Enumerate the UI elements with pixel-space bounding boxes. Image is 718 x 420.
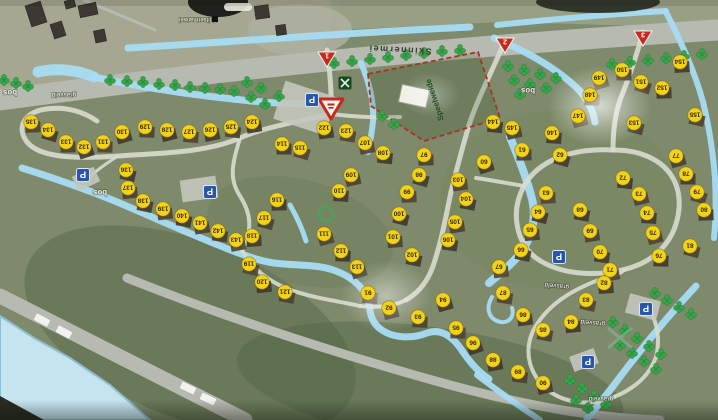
house-marker: 144 bbox=[486, 115, 500, 129]
parking-sign: P bbox=[77, 169, 90, 182]
house-marker: 61 bbox=[515, 143, 529, 157]
svg-text:P: P bbox=[642, 303, 649, 314]
map-label: Snitsermarwei bbox=[179, 16, 217, 22]
house-marker: 103 bbox=[451, 173, 465, 187]
svg-text:1: 1 bbox=[325, 52, 329, 61]
house-marker: 77 bbox=[669, 149, 683, 163]
svg-text:98: 98 bbox=[415, 171, 423, 178]
svg-text:70: 70 bbox=[596, 248, 604, 255]
svg-text:109: 109 bbox=[345, 171, 356, 178]
parking-sign: P bbox=[306, 94, 319, 107]
svg-text:121: 121 bbox=[279, 288, 290, 295]
house-marker: 113 bbox=[350, 260, 364, 274]
house-marker: 106 bbox=[441, 233, 455, 247]
svg-text:140: 140 bbox=[176, 212, 187, 219]
svg-text:122: 122 bbox=[318, 124, 329, 131]
house-marker: 109 bbox=[344, 168, 358, 182]
svg-text:73: 73 bbox=[635, 190, 643, 197]
svg-text:77: 77 bbox=[672, 152, 680, 159]
svg-text:91: 91 bbox=[364, 289, 372, 296]
svg-text:126: 126 bbox=[204, 126, 215, 133]
house-marker: 154 bbox=[673, 55, 687, 69]
house-marker: 75 bbox=[646, 226, 660, 240]
svg-text:64: 64 bbox=[534, 208, 542, 215]
house-marker: 111 bbox=[317, 227, 331, 241]
house-marker: 118 bbox=[245, 229, 259, 243]
svg-text:102: 102 bbox=[406, 251, 417, 258]
svg-text:106: 106 bbox=[442, 236, 453, 243]
house-marker: 120 bbox=[255, 275, 269, 289]
svg-text:68: 68 bbox=[576, 206, 584, 213]
svg-text:145: 145 bbox=[506, 124, 517, 131]
house-marker: 96 bbox=[466, 336, 480, 350]
house-marker: 134 bbox=[41, 123, 55, 137]
svg-text:113: 113 bbox=[351, 263, 362, 270]
svg-text:69: 69 bbox=[586, 227, 594, 234]
house-marker: 155 bbox=[688, 108, 702, 122]
house-marker: 95 bbox=[449, 321, 463, 335]
svg-text:114: 114 bbox=[276, 140, 287, 147]
house-marker: 115 bbox=[293, 141, 307, 155]
svg-text:74: 74 bbox=[643, 209, 651, 216]
house-marker: 105 bbox=[448, 215, 462, 229]
house-marker: 127 bbox=[182, 125, 196, 139]
house-marker: 80 bbox=[697, 203, 711, 217]
svg-text:100: 100 bbox=[393, 210, 404, 217]
svg-text:151: 151 bbox=[635, 78, 646, 85]
house-marker: 145 bbox=[505, 121, 519, 135]
house-marker: 143 bbox=[229, 233, 243, 247]
svg-text:137: 137 bbox=[122, 184, 133, 191]
svg-text:101: 101 bbox=[387, 233, 398, 240]
house-marker: 70 bbox=[593, 245, 607, 259]
legend-square bbox=[212, 16, 218, 22]
svg-text:119: 119 bbox=[243, 260, 254, 267]
svg-text:110: 110 bbox=[333, 187, 344, 194]
svg-text:P: P bbox=[555, 251, 562, 262]
svg-text:92: 92 bbox=[385, 304, 393, 311]
map-label: bos bbox=[2, 88, 17, 97]
svg-text:97: 97 bbox=[420, 151, 428, 158]
building bbox=[93, 29, 106, 43]
building bbox=[275, 24, 286, 35]
house-marker: 121 bbox=[278, 285, 292, 299]
map-label: grasveld bbox=[51, 91, 76, 98]
parking-sign: P bbox=[204, 186, 217, 199]
svg-text:148: 148 bbox=[584, 91, 595, 98]
svg-text:124: 124 bbox=[246, 118, 257, 125]
svg-text:76: 76 bbox=[655, 252, 663, 259]
house-marker: 90 bbox=[536, 376, 550, 390]
svg-text:138: 138 bbox=[137, 197, 148, 204]
house-marker: 152 bbox=[655, 81, 669, 95]
house-marker: 151 bbox=[634, 75, 648, 89]
house-marker: 112 bbox=[334, 244, 348, 258]
svg-text:147: 147 bbox=[572, 112, 583, 119]
svg-text:133: 133 bbox=[60, 138, 71, 145]
house-marker: 119 bbox=[242, 257, 256, 271]
house-marker: 130 bbox=[115, 125, 129, 139]
svg-text:75: 75 bbox=[649, 229, 657, 236]
svg-text:83: 83 bbox=[582, 296, 590, 303]
svg-text:96: 96 bbox=[469, 339, 477, 346]
svg-text:93: 93 bbox=[414, 313, 422, 320]
svg-text:88: 88 bbox=[489, 356, 497, 363]
house-marker: 87 bbox=[496, 286, 510, 300]
svg-text:67: 67 bbox=[495, 263, 503, 270]
house-marker: 65 bbox=[523, 223, 537, 237]
svg-text:65: 65 bbox=[526, 226, 534, 233]
house-marker: 131 bbox=[96, 135, 110, 149]
svg-text:82: 82 bbox=[600, 279, 608, 286]
svg-text:135: 135 bbox=[25, 118, 36, 125]
house-marker: 73 bbox=[632, 187, 646, 201]
svg-text:112: 112 bbox=[335, 247, 346, 254]
house-marker: 85 bbox=[536, 323, 550, 337]
svg-text:123: 123 bbox=[340, 127, 351, 134]
house-marker: 102 bbox=[405, 248, 419, 262]
building bbox=[254, 5, 270, 20]
house-marker: 83 bbox=[579, 293, 593, 307]
svg-text:142: 142 bbox=[212, 227, 223, 234]
svg-text:78: 78 bbox=[682, 170, 690, 177]
svg-text:104: 104 bbox=[460, 195, 471, 202]
svg-text:120: 120 bbox=[256, 278, 267, 285]
svg-text:P: P bbox=[584, 356, 591, 367]
parking-sign: P bbox=[640, 303, 653, 316]
house-marker: 142 bbox=[211, 224, 225, 238]
house-marker: 93 bbox=[411, 310, 425, 324]
svg-text:79: 79 bbox=[693, 188, 701, 195]
house-marker: 149 bbox=[592, 71, 606, 85]
svg-text:3: 3 bbox=[641, 31, 645, 40]
svg-text:95: 95 bbox=[452, 324, 460, 331]
house-marker: 99 bbox=[400, 185, 414, 199]
house-marker: 66 bbox=[514, 243, 528, 257]
svg-text:89: 89 bbox=[514, 368, 522, 375]
house-marker: 108 bbox=[376, 146, 390, 160]
house-marker: 68 bbox=[573, 203, 587, 217]
house-marker: 79 bbox=[690, 185, 704, 199]
svg-text:146: 146 bbox=[546, 129, 557, 136]
svg-text:99: 99 bbox=[403, 188, 411, 195]
house-marker: 104 bbox=[459, 192, 473, 206]
svg-text:116: 116 bbox=[271, 196, 282, 203]
svg-text:81: 81 bbox=[686, 242, 694, 249]
house-marker: 74 bbox=[640, 206, 654, 220]
house-marker: 137 bbox=[121, 181, 135, 195]
svg-text:94: 94 bbox=[439, 296, 447, 303]
house-marker: 153 bbox=[627, 116, 641, 130]
house-marker: 94 bbox=[436, 293, 450, 307]
park-map-photo: wegSnitsermarweiSkinnermeibosbosbosgrasv… bbox=[0, 0, 718, 420]
parking-sign: P bbox=[553, 251, 566, 264]
house-marker: 117 bbox=[257, 211, 271, 225]
svg-text:2: 2 bbox=[503, 38, 507, 47]
svg-text:152: 152 bbox=[656, 84, 667, 91]
svg-text:118: 118 bbox=[246, 232, 257, 239]
svg-text:134: 134 bbox=[42, 126, 53, 133]
house-marker: 141 bbox=[193, 216, 207, 230]
house-marker: 135 bbox=[24, 115, 38, 129]
house-marker: 92 bbox=[382, 301, 396, 315]
svg-text:105: 105 bbox=[449, 218, 460, 225]
house-marker: 122 bbox=[317, 121, 331, 135]
house-marker: 132 bbox=[77, 140, 91, 154]
svg-text:107: 107 bbox=[359, 139, 370, 146]
house-marker: 147 bbox=[571, 109, 585, 123]
svg-text:86: 86 bbox=[519, 311, 527, 318]
svg-text:85: 85 bbox=[539, 326, 547, 333]
house-marker: 88 bbox=[486, 353, 500, 367]
svg-text:130: 130 bbox=[116, 128, 127, 135]
svg-text:71: 71 bbox=[606, 266, 614, 273]
svg-text:136: 136 bbox=[120, 166, 131, 173]
svg-text:127: 127 bbox=[183, 128, 194, 135]
house-marker: 69 bbox=[583, 224, 597, 238]
svg-text:117: 117 bbox=[258, 214, 269, 221]
svg-text:P: P bbox=[308, 94, 315, 105]
house-marker: 128 bbox=[160, 123, 174, 137]
house-marker: 72 bbox=[616, 171, 630, 185]
house-marker: 78 bbox=[679, 167, 693, 181]
house-marker: 86 bbox=[516, 308, 530, 322]
house-marker: 138 bbox=[136, 194, 150, 208]
house-marker: 82 bbox=[597, 276, 611, 290]
svg-text:90: 90 bbox=[539, 379, 547, 386]
svg-text:115: 115 bbox=[294, 144, 305, 151]
svg-text:72: 72 bbox=[619, 174, 627, 181]
svg-text:80: 80 bbox=[700, 206, 708, 213]
crossing-marker bbox=[339, 77, 352, 90]
house-marker: 71 bbox=[603, 263, 617, 277]
house-marker: 60 bbox=[477, 155, 491, 169]
house-marker: 123 bbox=[339, 124, 353, 138]
house-marker: 110 bbox=[332, 184, 346, 198]
house-marker: 126 bbox=[203, 123, 217, 137]
house-marker: 148 bbox=[583, 88, 597, 102]
house-marker: 124 bbox=[245, 115, 259, 129]
svg-text:149: 149 bbox=[593, 74, 604, 81]
svg-text:111: 111 bbox=[319, 230, 330, 237]
house-marker: 81 bbox=[683, 239, 697, 253]
bottom-shadow bbox=[0, 400, 718, 420]
svg-text:60: 60 bbox=[480, 158, 488, 165]
house-marker: 150 bbox=[615, 63, 629, 77]
house-marker: 116 bbox=[270, 193, 284, 207]
house-marker: 125 bbox=[224, 120, 238, 134]
svg-text:131: 131 bbox=[97, 138, 108, 145]
map-label: bos bbox=[92, 188, 107, 197]
house-marker: 91 bbox=[361, 286, 375, 300]
svg-text:103: 103 bbox=[452, 176, 463, 183]
house-marker: 114 bbox=[275, 137, 289, 151]
park-map-canvas: wegSnitsermarweiSkinnermeibosbosbosgrasv… bbox=[0, 0, 718, 420]
house-marker: 146 bbox=[545, 126, 559, 140]
svg-text:129: 129 bbox=[139, 123, 150, 130]
parking-sign: P bbox=[582, 356, 595, 369]
house-marker: 89 bbox=[511, 365, 525, 379]
house-marker: 133 bbox=[59, 135, 73, 149]
house-marker: 64 bbox=[531, 205, 545, 219]
svg-text:141: 141 bbox=[194, 219, 205, 226]
house-marker: 62 bbox=[553, 148, 567, 162]
house-marker: 139 bbox=[156, 202, 170, 216]
map-label: bos bbox=[520, 86, 535, 95]
svg-text:84: 84 bbox=[567, 318, 575, 325]
svg-text:P: P bbox=[79, 169, 86, 180]
svg-text:132: 132 bbox=[78, 143, 89, 150]
svg-text:155: 155 bbox=[689, 111, 700, 118]
svg-text:128: 128 bbox=[161, 126, 172, 133]
house-marker: 136 bbox=[119, 163, 133, 177]
svg-text:125: 125 bbox=[225, 123, 236, 130]
house-marker: 98 bbox=[412, 168, 426, 182]
house-marker: 129 bbox=[138, 120, 152, 134]
house-marker: 100 bbox=[392, 207, 406, 221]
svg-text:144: 144 bbox=[487, 118, 498, 125]
svg-text:150: 150 bbox=[616, 66, 627, 73]
svg-text:154: 154 bbox=[674, 58, 685, 65]
house-marker: 107 bbox=[358, 136, 372, 150]
svg-text:87: 87 bbox=[499, 289, 507, 296]
svg-text:66: 66 bbox=[517, 246, 525, 253]
svg-text:62: 62 bbox=[556, 151, 564, 158]
top-shadow bbox=[0, 0, 718, 6]
house-marker: 76 bbox=[652, 249, 666, 263]
house-marker: 140 bbox=[175, 209, 189, 223]
house-marker: 101 bbox=[386, 230, 400, 244]
house-marker: 97 bbox=[417, 148, 431, 162]
svg-text:108: 108 bbox=[377, 149, 388, 156]
house-marker: 84 bbox=[564, 315, 578, 329]
house-marker: 63 bbox=[539, 186, 553, 200]
svg-text:143: 143 bbox=[230, 236, 241, 243]
svg-text:61: 61 bbox=[518, 146, 526, 153]
svg-text:153: 153 bbox=[628, 119, 639, 126]
svg-text:139: 139 bbox=[157, 205, 168, 212]
svg-text:63: 63 bbox=[542, 189, 550, 196]
svg-text:P: P bbox=[206, 186, 213, 197]
house-marker: 67 bbox=[492, 260, 506, 274]
